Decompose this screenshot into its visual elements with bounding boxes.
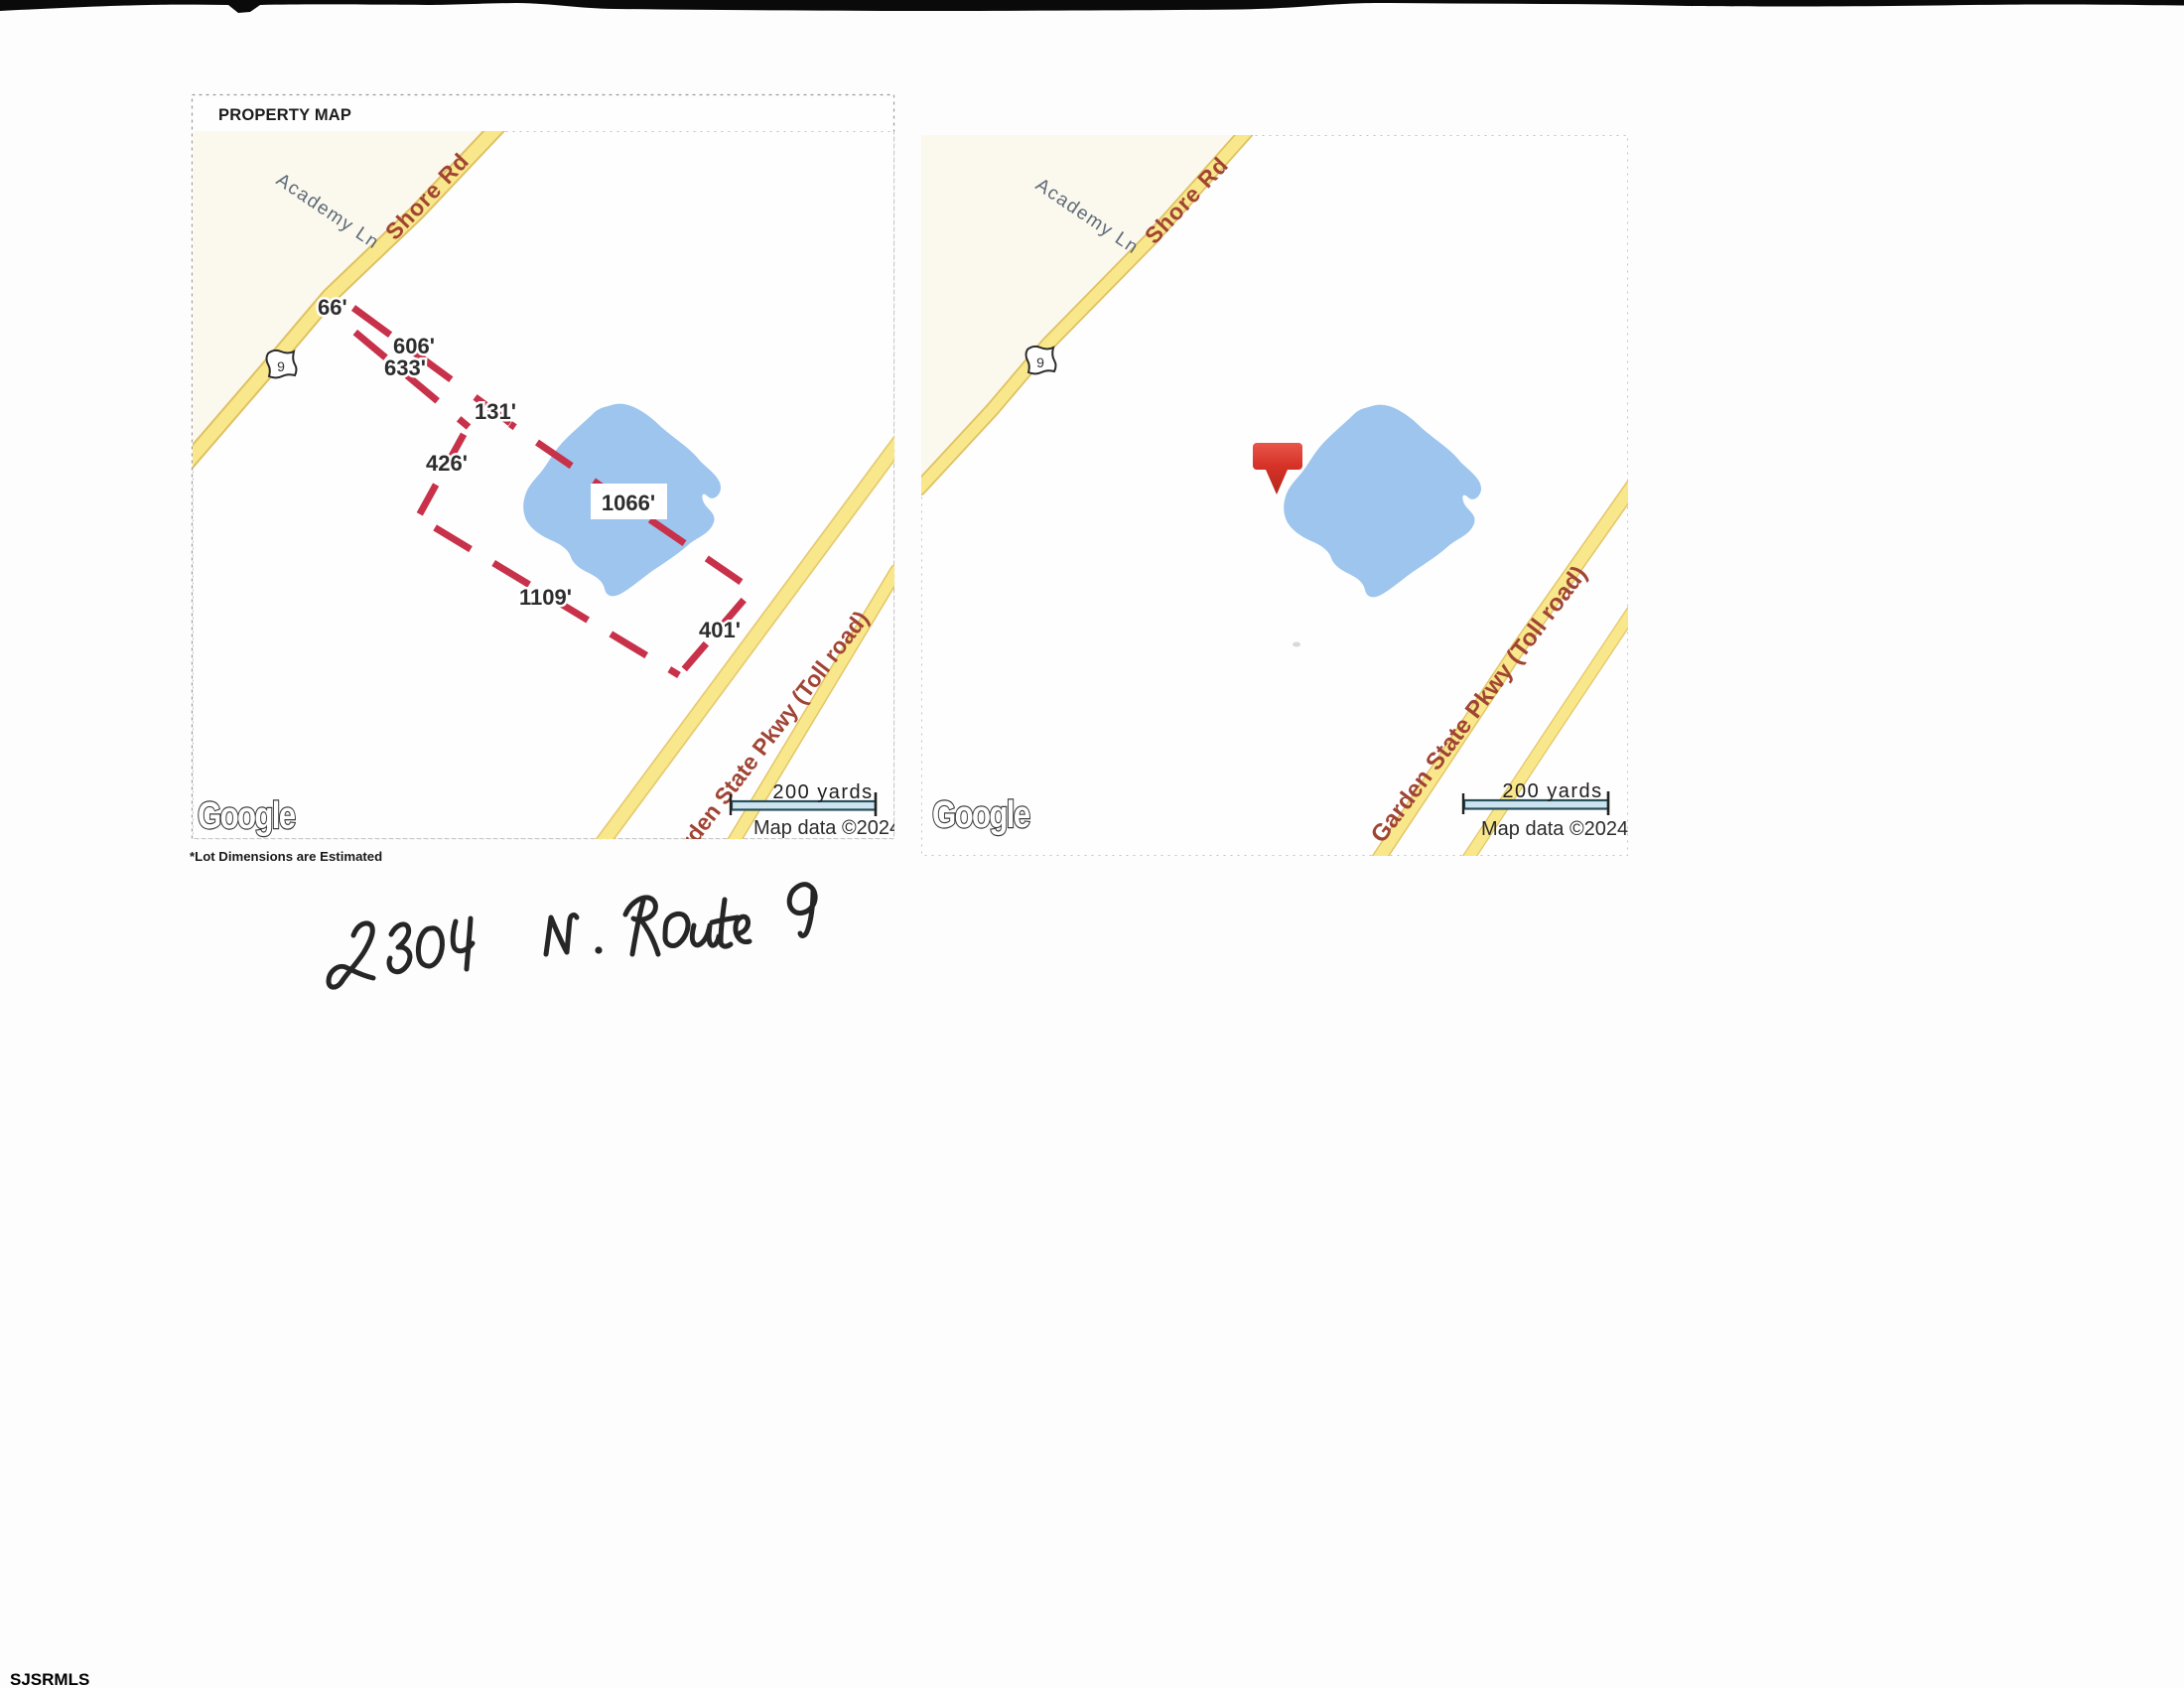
svg-text:200 yards: 200 yards [772,781,873,803]
svg-text:Google: Google [932,794,1030,836]
svg-text:PROPERTY MAP: PROPERTY MAP [218,106,351,124]
svg-text:Map data ©2024: Map data ©2024 [753,817,900,839]
svg-text:401': 401' [699,618,741,642]
svg-text:66': 66' [318,295,347,320]
svg-text:131': 131' [475,399,516,424]
svg-text:1066': 1066' [602,491,655,515]
svg-text:9: 9 [1036,354,1044,370]
svg-text:9: 9 [277,358,285,374]
svg-text:*Lot Dimensions are Estimated: *Lot Dimensions are Estimated [190,849,382,864]
svg-text:SJSRMLS: SJSRMLS [10,1670,89,1688]
svg-text:426': 426' [426,451,468,476]
svg-text:1109': 1109' [519,585,572,610]
svg-text:Map data ©2024: Map data ©2024 [1481,818,1628,840]
svg-text:200 yards: 200 yards [1502,780,1602,802]
svg-text:Google: Google [198,795,296,837]
svg-text:633': 633' [384,355,426,380]
